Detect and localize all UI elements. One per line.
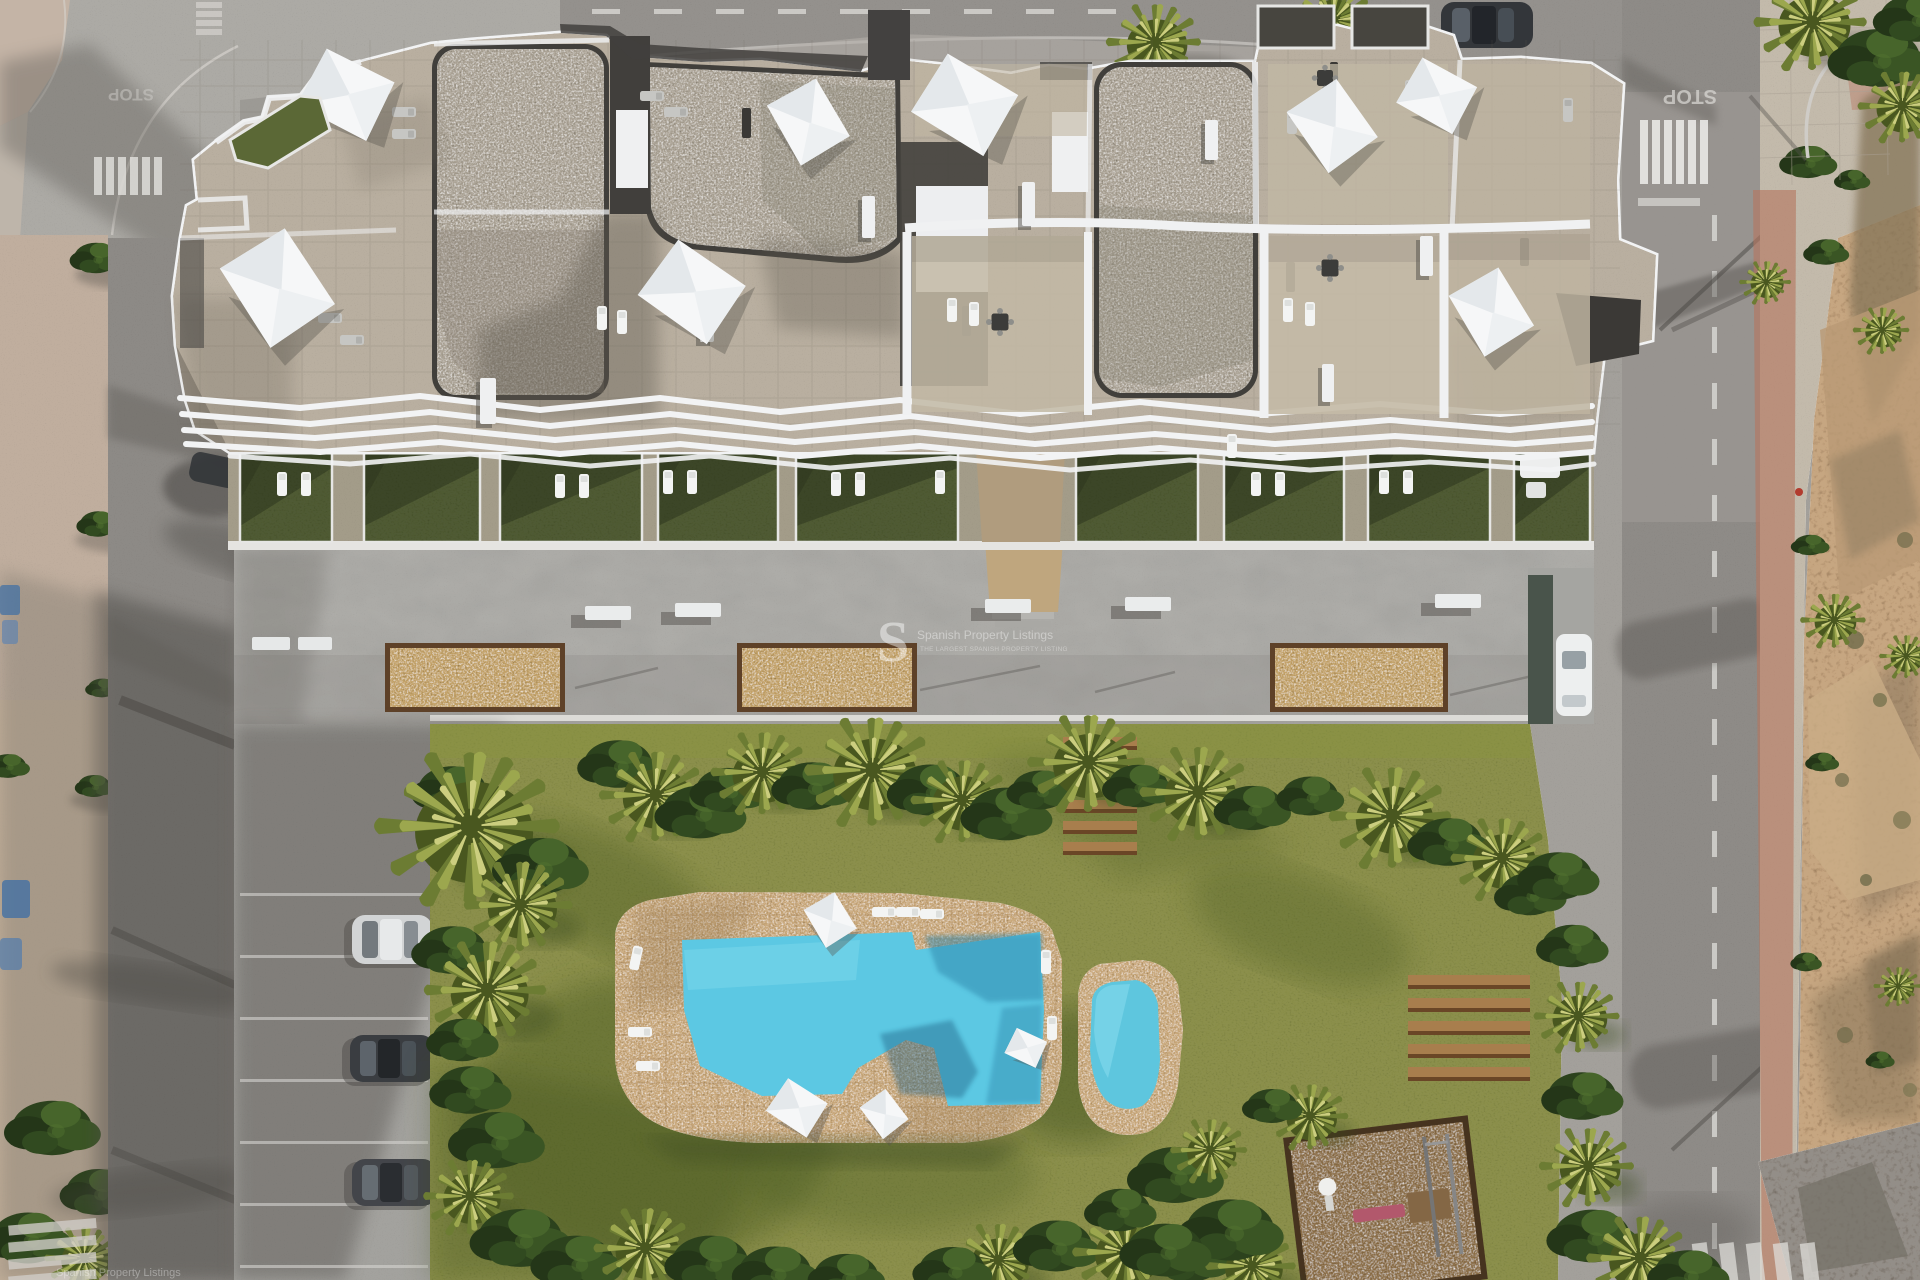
- svg-text:STOP: STOP: [1663, 85, 1717, 107]
- svg-text:STOP: STOP: [108, 85, 154, 104]
- svg-text:THE LARGEST SPANISH PROPERTY L: THE LARGEST SPANISH PROPERTY LISTING: [920, 646, 1068, 653]
- svg-text:Spanish Property Listings: Spanish Property Listings: [917, 628, 1053, 642]
- svg-text:S: S: [877, 609, 909, 674]
- svg-text:Spanish Property Listings: Spanish Property Listings: [56, 1267, 181, 1279]
